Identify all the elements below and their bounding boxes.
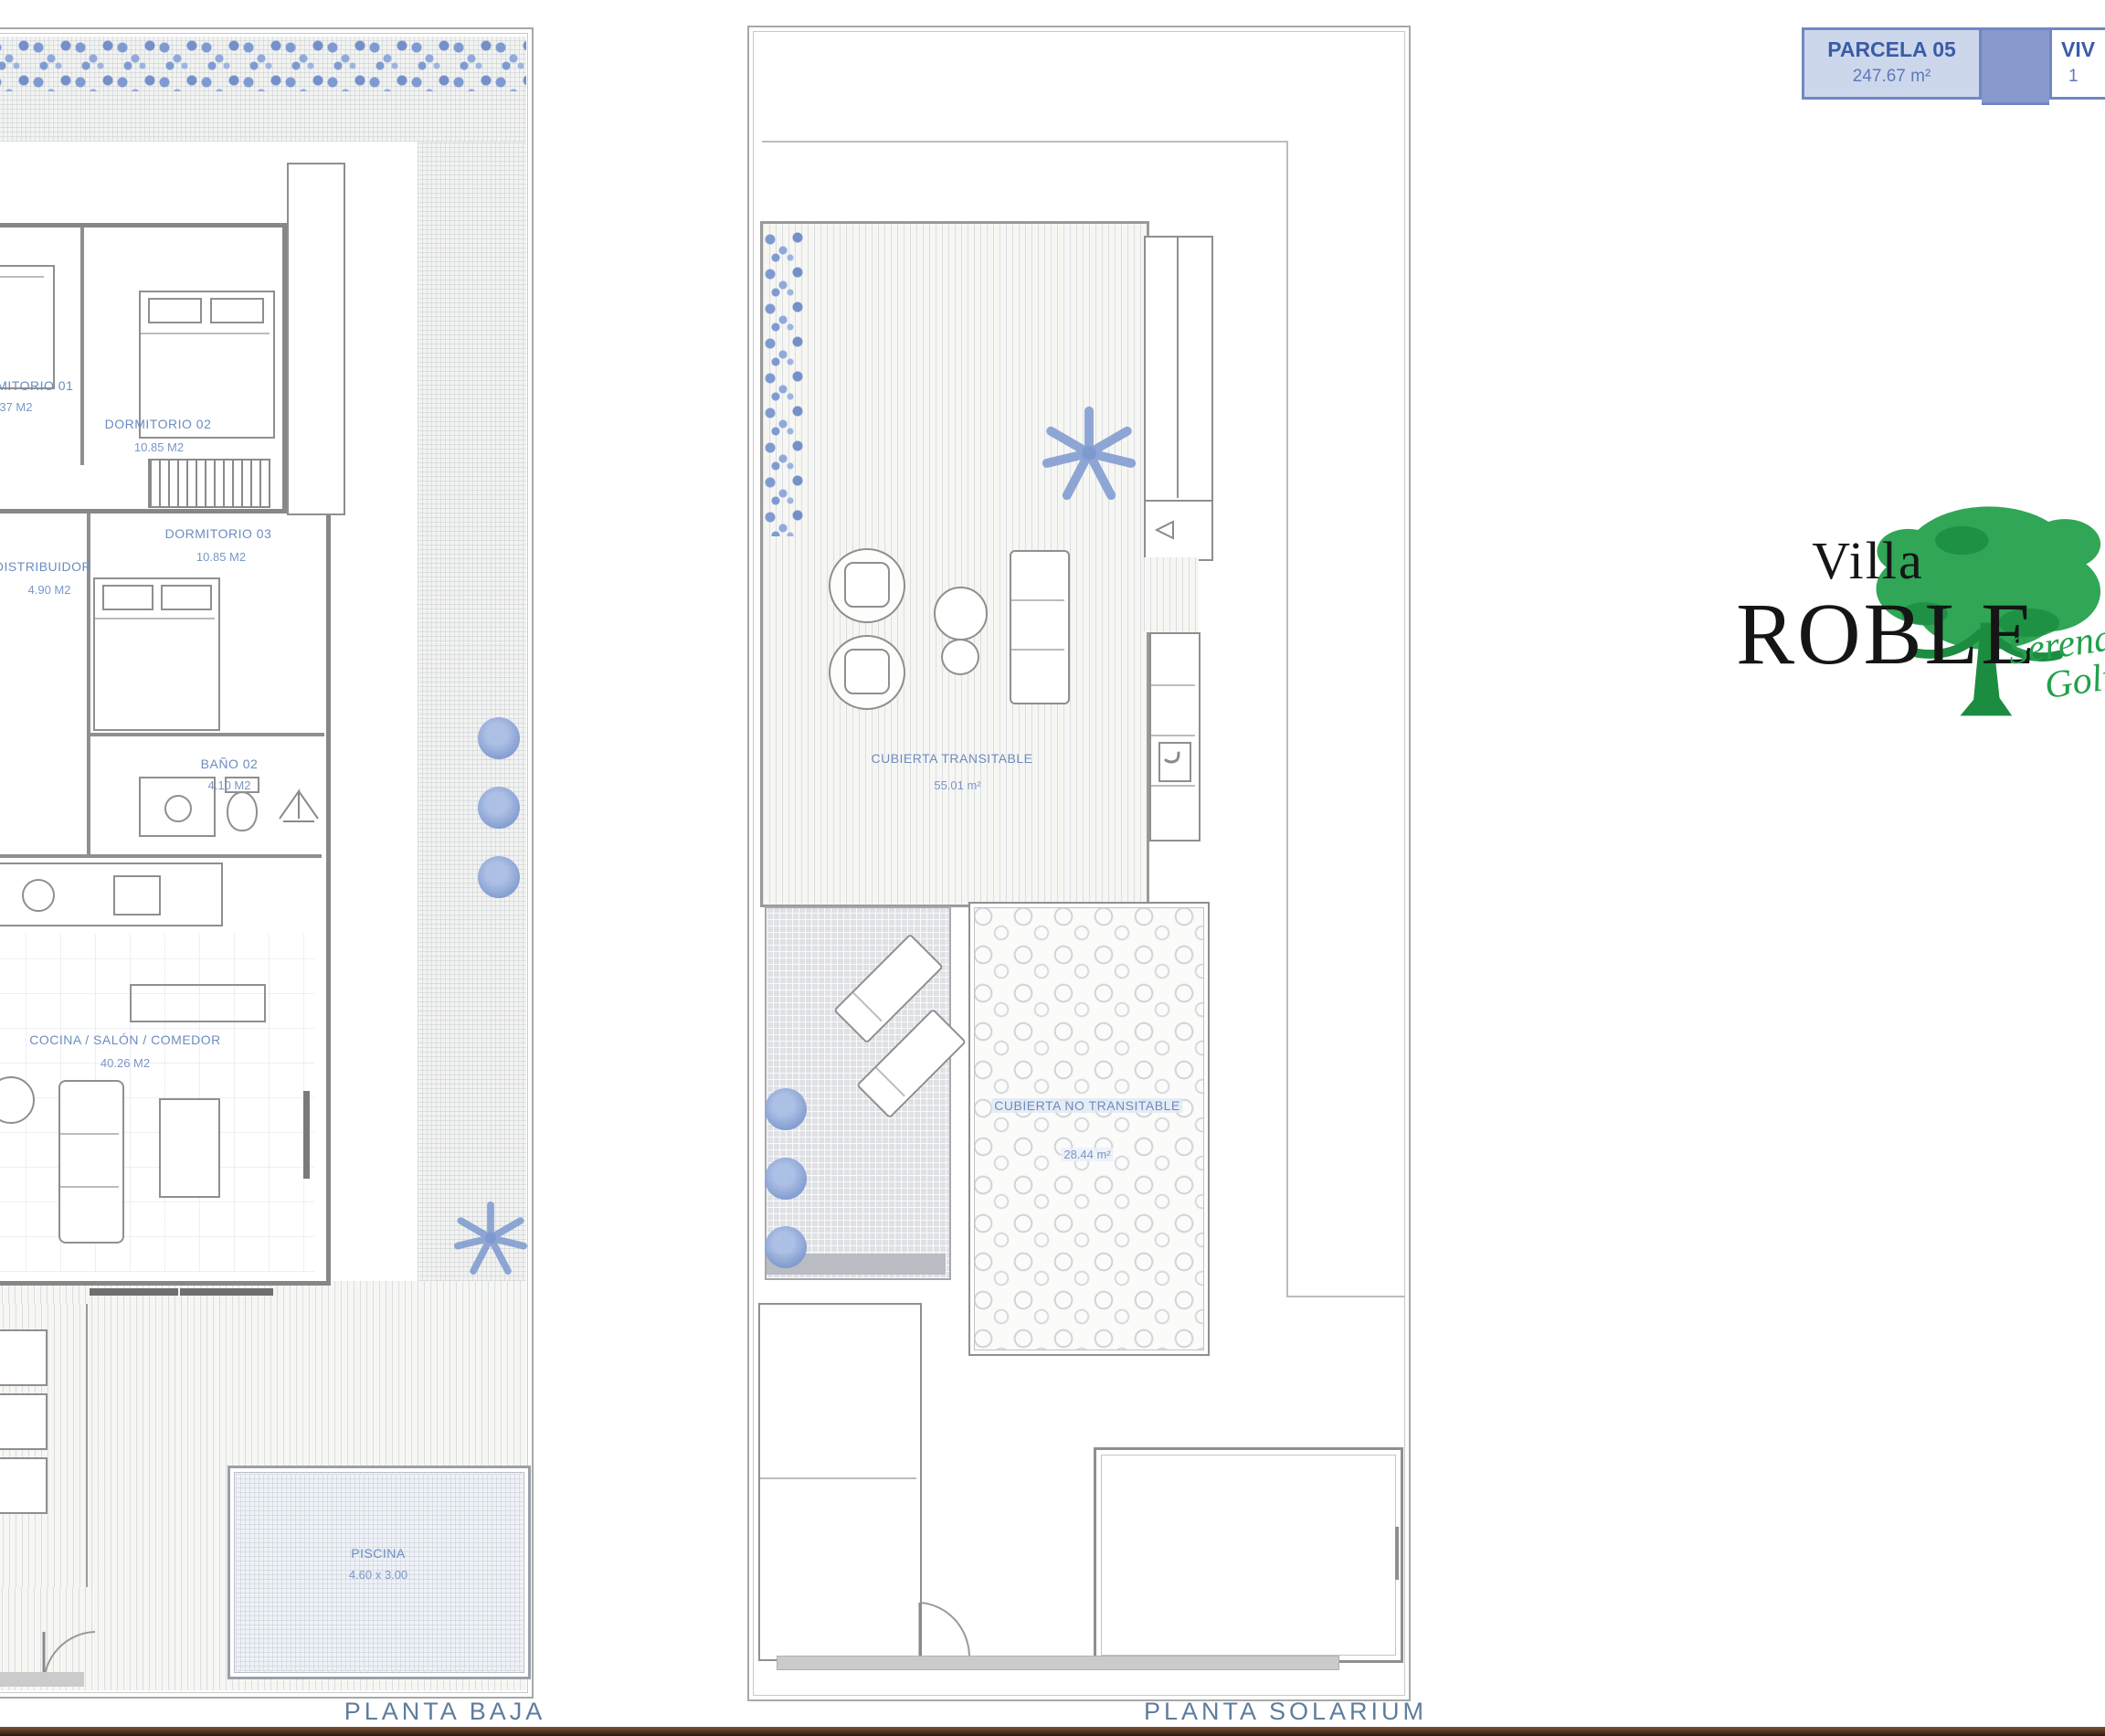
room-label-cocina: COCINA / SALÓN / COMEDOR [29,1032,221,1047]
outdoor-sofa [1010,550,1070,704]
partition-dorm1-dorm2 [80,228,84,465]
room-area-dormitorio3: 10.85 M2 [196,550,246,564]
exterior-stairs [287,163,345,515]
planta-baja-plan: PISCINA 4.60 x 3.00 DORMITORIO 01 8.37 M… [0,27,534,1699]
side-table [934,587,988,640]
gravel-roof [968,902,1210,1356]
footer-bar [0,1727,2105,1736]
planta-solarium-plan: CUBIERTA TRANSITABLE 55.01 m² CUBIERTA N… [747,26,1411,1701]
sink-icon [1158,742,1191,782]
tv-unit [303,1091,310,1179]
parcela-info-box: PARCELA 05 247.67 m² [1802,27,1982,100]
lower-room-right [1094,1447,1403,1663]
garden-right-band [418,142,526,1295]
setback-line-top [762,141,1288,143]
room-label-dormitorio2: DORMITORIO 02 [105,417,212,431]
bed-dormitorio1 [0,265,55,389]
vegetation-border [0,38,526,91]
sliding-door [90,1288,178,1296]
lower-room-left [758,1303,922,1661]
stairs-landing [1144,500,1213,561]
tree-icon [478,787,520,829]
planta-baja-title: PLANTA BAJA [344,1698,546,1726]
shower-icon [272,786,325,824]
vivienda-title: VIV [2061,37,2105,62]
roof-deck [760,221,1149,907]
tree-icon [478,717,520,759]
round-armchair [829,635,905,710]
info-box-divider [1982,27,2049,105]
tree-icon [765,1088,807,1130]
sidewalk-band [777,1656,1339,1670]
logo-roble-text: ROBLE [1736,583,2037,684]
partition-living-top [0,854,322,858]
tree-icon [478,856,520,898]
pool-label: PISCINA [351,1546,406,1561]
floorplan-sheet: PISCINA 4.60 x 3.00 DORMITORIO 01 8.37 M… [0,0,2105,1736]
deck-strip [1144,557,1199,632]
tree-icon [765,1158,807,1200]
area-label-transitable: CUBIERTA TRANSITABLE [871,751,1032,766]
area-label-no-transitable: CUBIERTA NO TRANSITABLE [991,1098,1182,1113]
living-floor [0,934,314,1272]
kitchen-counter [0,863,223,926]
utility-strip [0,1304,88,1587]
bed-dormitorio3 [93,577,220,731]
pool-size: 4.60 x 3.00 [349,1568,407,1582]
driveway-band [0,1672,84,1687]
round-armchair [829,548,905,623]
room-area-cocina: 40.26 M2 [100,1056,150,1070]
tree-icon [765,1226,807,1268]
side-table [941,639,979,675]
solarium-stairs [1144,236,1213,503]
coffee-table [159,1098,220,1198]
vivienda-info-box: VIV 1 [2049,27,2105,100]
palm-icon [451,1197,530,1279]
setback-line-bottom [1286,1296,1405,1297]
room-area-distribuidor: 4.90 M2 [28,583,71,597]
partition-dorm3-bath [87,733,324,736]
room-area-bano2: 4.10 M2 [208,778,251,792]
room-area-dormitorio2: 10.85 M2 [134,440,184,454]
room-label-bano2: BAÑO 02 [201,757,259,771]
sliding-door [180,1288,273,1296]
palm-icon [1039,402,1139,504]
room-label-distribuidor: DISTRIBUIDOR [0,559,91,574]
wardrobe [148,459,270,508]
bath-vanity [139,777,216,837]
area-value-transitable: 55.01 m² [934,778,980,792]
door-arc [918,1601,971,1659]
kitchenette-counter [1149,632,1201,842]
logo-script-golf: Golf [2042,655,2105,708]
sofa [58,1080,124,1244]
planta-solarium-title: PLANTA SOLARIUM [1144,1698,1427,1726]
room-area-dormitorio1: 8.37 M2 [0,400,32,414]
parcela-area: 247.67 m² [1804,67,1979,87]
area-value-no-transitable: 28.44 m² [1061,1148,1113,1161]
setback-line-right [1286,141,1288,1296]
vivienda-value: 1 [2068,67,2105,87]
room-label-dormitorio3: DORMITORIO 03 [165,526,272,541]
logo-villa-text: Villa [1783,530,1952,591]
vegetation-strip [763,230,803,536]
room-label-dormitorio1: DORMITORIO 01 [0,378,73,393]
parcela-title: PARCELA 05 [1804,37,1979,62]
